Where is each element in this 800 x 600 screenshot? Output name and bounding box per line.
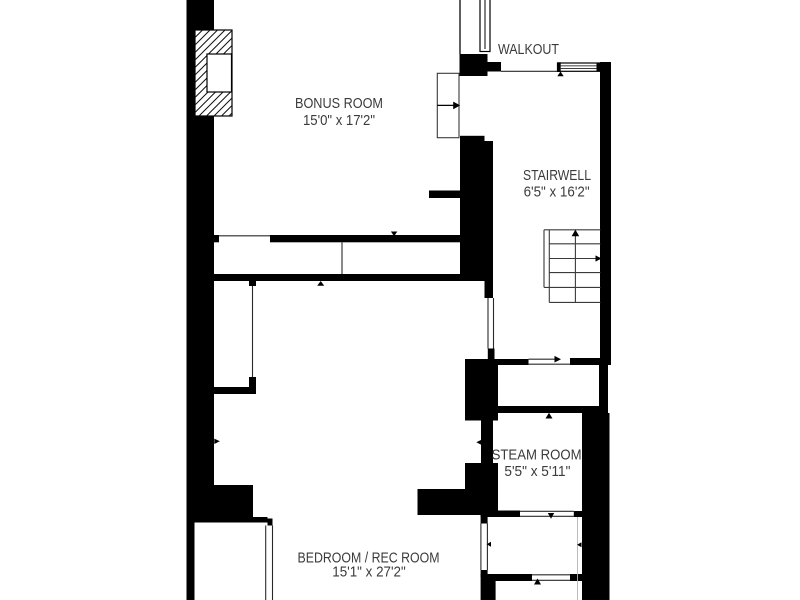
svg-text:BONUS ROOM: BONUS ROOM bbox=[295, 95, 383, 112]
svg-text:STAIRWELL: STAIRWELL bbox=[523, 167, 591, 184]
svg-text:6'5" x 16'2": 6'5" x 16'2" bbox=[524, 184, 590, 201]
svg-text:WALKOUT: WALKOUT bbox=[498, 41, 559, 58]
svg-text:15'0" x 17'2": 15'0" x 17'2" bbox=[303, 112, 375, 129]
svg-text:5'5" x 5'11": 5'5" x 5'11" bbox=[504, 463, 570, 480]
svg-text:15'1" x 27'2": 15'1" x 27'2" bbox=[332, 563, 406, 580]
svg-text:STEAM ROOM: STEAM ROOM bbox=[492, 447, 582, 464]
